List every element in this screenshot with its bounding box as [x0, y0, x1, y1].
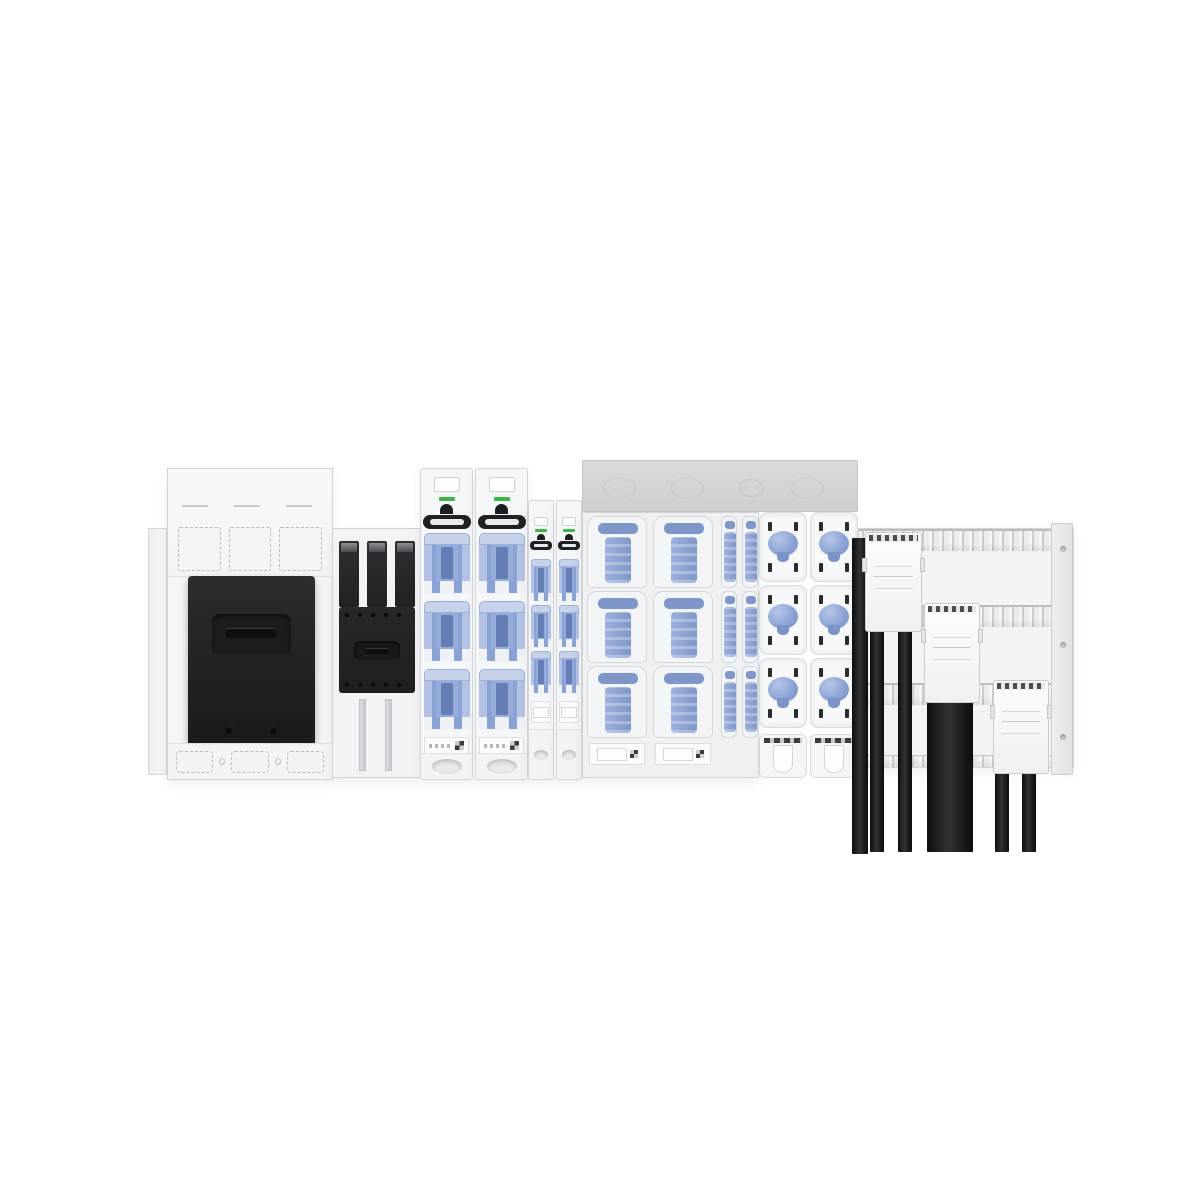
knob-fuse-box — [810, 512, 858, 582]
screw-dot — [270, 728, 276, 734]
mccb-pole-terminal — [367, 541, 387, 607]
adapter-clip — [862, 558, 867, 572]
rating-label — [655, 743, 711, 765]
fuse-pullout — [653, 516, 713, 588]
fuse-cap — [531, 559, 551, 567]
mccb-pole-terminal — [395, 541, 415, 607]
vent-slot — [819, 595, 823, 604]
knob — [495, 504, 508, 514]
fuse-cap — [559, 559, 579, 567]
cable-adapter — [993, 680, 1049, 774]
blue-knob — [768, 604, 798, 629]
fuse-strip-column — [556, 500, 582, 780]
fuse-handle — [724, 682, 736, 732]
fuse-foot — [531, 639, 551, 647]
fuse-handle — [671, 537, 697, 583]
mccb-handle-recess — [354, 641, 400, 660]
label-window — [663, 748, 693, 761]
fuse-pullout-narrow — [742, 666, 758, 738]
cable-knockout — [287, 751, 324, 773]
power-cable — [870, 630, 884, 852]
vent-slot — [768, 563, 772, 572]
qr-mark — [455, 741, 464, 750]
vent-slot — [819, 709, 823, 718]
pullout-column — [585, 513, 649, 777]
vent-slot — [819, 563, 823, 572]
fuse-body — [424, 681, 470, 717]
green-indicator — [439, 497, 455, 501]
blue-knob — [768, 531, 798, 556]
fuse-foot — [531, 593, 551, 601]
power-cable — [1022, 772, 1036, 852]
fuse-foot — [479, 649, 525, 661]
blue-knob — [819, 677, 849, 702]
fuse-module — [424, 669, 470, 731]
pullout-column-narrow — [719, 513, 739, 777]
fuse-foot — [559, 685, 579, 693]
fuse-handle — [745, 682, 757, 732]
qr-mark — [696, 750, 704, 758]
label-window — [597, 748, 627, 761]
knockout — [229, 527, 272, 571]
knob-fuse-box — [759, 585, 807, 655]
pullout-rows — [719, 516, 739, 738]
mounting-rail — [385, 699, 392, 771]
fuse-pullout-narrow — [742, 591, 758, 663]
cable-entry-base — [476, 753, 527, 779]
cable-entry-base — [529, 729, 553, 779]
adapter-clip — [978, 629, 983, 643]
fuse-pullout-narrow — [742, 516, 758, 588]
adapter-clip — [1047, 705, 1052, 719]
fuse-foot — [424, 581, 470, 593]
knob-fuse-box — [810, 585, 858, 655]
vent-slot — [768, 668, 772, 677]
mccb-pole-terminal — [339, 541, 359, 607]
breaker-black-cover — [188, 576, 315, 746]
fuse-body — [559, 613, 579, 639]
fuse-module — [559, 651, 579, 693]
fuse-foot — [531, 685, 551, 693]
fuse-foot — [479, 581, 525, 593]
fuse-module-stack — [529, 559, 553, 693]
fuse-body — [479, 681, 525, 717]
vent-slot — [794, 636, 798, 645]
fuse-module — [479, 669, 525, 731]
label-window — [534, 517, 548, 526]
pull-handle — [530, 541, 552, 550]
switchgear-assembly — [148, 460, 1074, 860]
fuse-body — [559, 567, 579, 593]
rating-label — [589, 743, 645, 765]
fuse-pullout — [653, 591, 713, 663]
fuse-body — [424, 613, 470, 649]
handle-slot — [226, 628, 276, 638]
knob-box-column — [759, 512, 807, 778]
rating-label — [424, 737, 469, 754]
knob — [565, 534, 573, 540]
fuse-pullout — [587, 591, 647, 663]
terminal-cover — [198, 720, 228, 738]
fuse-handle — [745, 607, 757, 657]
fuse-handle — [724, 532, 736, 582]
vent-slot — [845, 709, 849, 718]
vent-slot — [845, 563, 849, 572]
pullout-column-narrow — [741, 513, 758, 777]
fuse-handle — [745, 532, 757, 582]
vent-slot — [768, 522, 772, 531]
fuse-pullout-narrow — [721, 591, 737, 663]
handle-recess — [212, 614, 291, 656]
label-window — [561, 707, 577, 718]
pullout-rows — [741, 516, 758, 738]
mccb-terminal-covers — [339, 541, 415, 607]
fuse-module-stack — [557, 559, 581, 693]
adapter-clip — [921, 629, 926, 643]
vent-slot — [768, 636, 772, 645]
blue-knob — [819, 604, 849, 629]
fuse-module — [424, 601, 470, 663]
screw — [1060, 734, 1066, 740]
vent-slot — [794, 522, 798, 531]
knob-fuse-box — [759, 512, 807, 582]
screw-hole — [275, 758, 281, 765]
fuse-pullout — [653, 666, 713, 738]
vent-slot — [794, 595, 798, 604]
screw-dot — [226, 728, 232, 734]
label-text-marks — [484, 744, 507, 748]
cable-knockout — [231, 751, 268, 773]
power-cable — [995, 772, 1009, 852]
terminal-screws — [344, 612, 410, 618]
vent-slot — [819, 522, 823, 531]
fuse-body — [424, 545, 470, 581]
vent-slot — [794, 668, 798, 677]
vent-slot — [794, 563, 798, 572]
pullout-rows — [585, 516, 649, 738]
fuse-foot — [479, 717, 525, 729]
fuse-handle — [605, 687, 631, 733]
rating-label — [559, 701, 579, 723]
fuse-handle — [605, 612, 631, 658]
vent-slot — [768, 709, 772, 718]
cable-adapter — [924, 603, 980, 703]
fuse-foot — [559, 593, 579, 601]
fuse-module — [559, 559, 579, 601]
green-indicator — [535, 529, 547, 532]
left-end-panel — [148, 528, 167, 775]
terminal-cover — [237, 720, 267, 738]
cable-entry — [562, 750, 576, 760]
rating-label — [531, 701, 551, 723]
blue-knob — [768, 677, 798, 702]
green-indicator — [494, 497, 510, 501]
knob-box-stack — [810, 512, 858, 728]
fuse-cap — [479, 601, 525, 613]
knob — [537, 534, 545, 540]
terminal-cover — [275, 720, 305, 738]
label-window — [533, 707, 549, 718]
fuse-cap — [479, 669, 525, 681]
bottom-funnel-tab — [810, 734, 858, 778]
power-cable-wide — [927, 702, 973, 852]
fuse-pullout — [587, 516, 647, 588]
pull-handle — [423, 515, 471, 529]
cover-vent-dashes — [182, 505, 318, 507]
fuse-cap — [424, 533, 470, 545]
fuse-body — [559, 659, 579, 685]
mccb-unit — [332, 528, 421, 778]
adapter-clip — [990, 705, 995, 719]
label-window — [489, 477, 515, 492]
knob-fuse-box — [810, 658, 858, 728]
fuse-module-stack — [421, 533, 472, 731]
fuse-module — [559, 605, 579, 647]
vent-slot — [819, 668, 823, 677]
fuse-handle — [724, 607, 736, 657]
vent-slot — [819, 636, 823, 645]
knob-fuse-boxes — [759, 512, 858, 778]
cable-entry — [432, 759, 462, 774]
cable-knockout — [176, 751, 213, 773]
cable-entry — [487, 759, 517, 774]
label-window — [562, 517, 576, 526]
green-indicator — [563, 529, 575, 532]
screw — [1060, 642, 1066, 648]
blue-knob — [819, 531, 849, 556]
top-cover — [168, 469, 332, 577]
knockout-row — [178, 527, 322, 571]
fuse-pullout-narrow — [721, 516, 737, 588]
knob — [440, 504, 453, 514]
fuse-pullout-section — [582, 512, 759, 778]
qr-mark — [630, 750, 638, 758]
label-text-marks — [429, 744, 452, 748]
fuse-cap — [531, 605, 551, 613]
fuse-foot — [424, 717, 470, 729]
bottom-gland-plate — [168, 743, 332, 779]
mccb-body — [339, 607, 415, 693]
fuse-body — [531, 613, 551, 639]
pull-handle — [478, 515, 526, 529]
screw-hole — [219, 758, 225, 765]
fuse-cap — [424, 601, 470, 613]
knockout — [279, 527, 322, 571]
fuse-module — [424, 533, 470, 595]
fuse-foot — [424, 649, 470, 661]
fuse-handle — [671, 687, 697, 733]
fuse-module-stack — [476, 533, 527, 731]
mounting-rail — [359, 699, 366, 771]
knob-fuse-box — [759, 658, 807, 728]
fuse-strip-column — [528, 500, 554, 780]
adapter-clip — [920, 558, 925, 572]
fuse-module — [479, 533, 525, 595]
knob-box-column — [810, 512, 858, 778]
fuse-pullout — [587, 666, 647, 738]
fuse-module — [531, 651, 551, 693]
fuse-cap — [424, 669, 470, 681]
fuse-foot — [559, 639, 579, 647]
bottom-funnel-tab — [759, 734, 807, 778]
fuse-handle — [605, 537, 631, 583]
fuse-cap — [559, 605, 579, 613]
vent-slot — [845, 595, 849, 604]
vent-slot — [845, 668, 849, 677]
fuse-switch-large-pair — [420, 468, 528, 780]
fuse-pullout-narrow — [721, 666, 737, 738]
pullout-rows — [651, 516, 715, 738]
fuse-body — [479, 613, 525, 649]
knockout — [178, 527, 221, 571]
pull-handle — [558, 541, 580, 550]
fuse-body — [531, 567, 551, 593]
fuse-cap — [559, 651, 579, 659]
fuse-module — [479, 601, 525, 663]
screw — [1060, 546, 1066, 552]
fuse-strip-narrow-pair — [528, 500, 582, 780]
qr-mark — [510, 741, 519, 750]
fuse-switch-column — [475, 468, 528, 780]
vent-slot — [845, 522, 849, 531]
switch-disconnector-unit — [167, 468, 333, 780]
power-cable — [898, 630, 912, 852]
cable-entry — [534, 750, 548, 760]
cable-adapter — [865, 532, 922, 632]
fuse-cap — [479, 533, 525, 545]
fuse-switch-column — [420, 468, 473, 780]
fuse-module — [531, 605, 551, 647]
fuse-body — [531, 659, 551, 685]
cable-entry-base — [421, 753, 472, 779]
label-window — [434, 477, 460, 492]
knob-box-stack — [759, 512, 807, 728]
fuse-cap — [531, 651, 551, 659]
fuse-handle — [671, 612, 697, 658]
vent-slot — [794, 709, 798, 718]
fuse-module — [531, 559, 551, 601]
pullout-column — [651, 513, 715, 777]
vent-slot — [768, 595, 772, 604]
cable-entry-base — [557, 729, 581, 779]
panel-side-rail — [1051, 523, 1073, 775]
fuse-body — [479, 545, 525, 581]
terminal-cover-row — [198, 720, 305, 738]
product-render-canvas — [0, 0, 1200, 1200]
rating-label — [479, 737, 524, 754]
top-cover-band — [582, 460, 858, 512]
terminal-screws — [344, 682, 410, 688]
vent-slot — [845, 636, 849, 645]
